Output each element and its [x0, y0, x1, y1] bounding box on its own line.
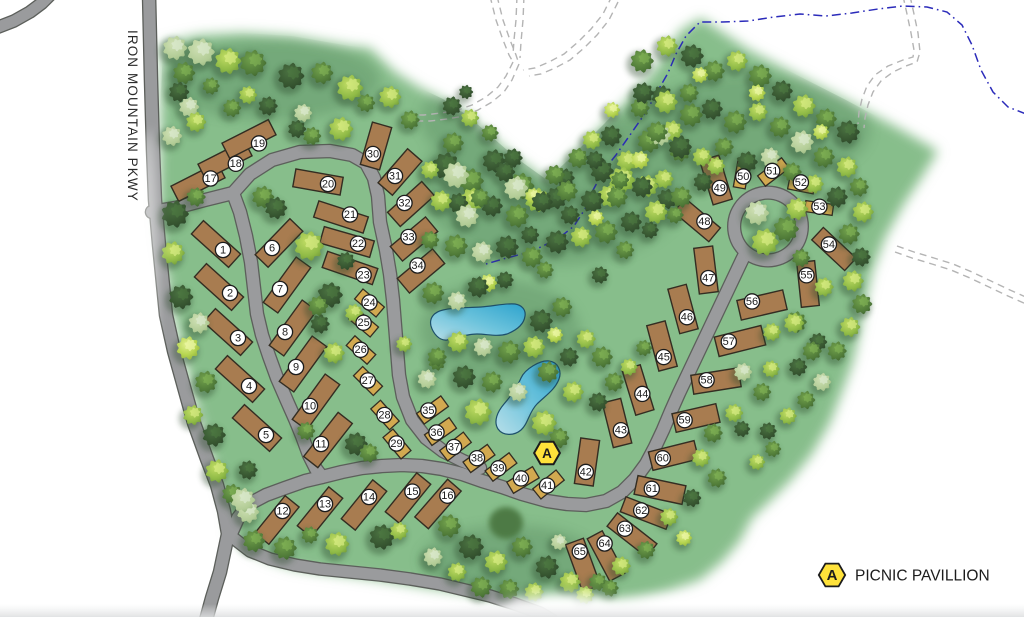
svg-text:1: 1: [220, 244, 226, 256]
svg-text:53: 53: [813, 201, 825, 213]
svg-text:36: 36: [430, 427, 442, 439]
svg-text:47: 47: [702, 273, 714, 285]
svg-text:15: 15: [406, 486, 418, 498]
svg-text:61: 61: [646, 483, 658, 495]
svg-text:A: A: [542, 446, 552, 461]
svg-text:57: 57: [723, 336, 735, 348]
svg-text:19: 19: [253, 138, 265, 150]
svg-text:8: 8: [282, 326, 288, 338]
svg-text:37: 37: [448, 441, 460, 453]
svg-text:50: 50: [737, 171, 749, 183]
svg-text:12: 12: [276, 505, 288, 517]
svg-text:64: 64: [598, 538, 610, 550]
svg-text:6: 6: [269, 242, 275, 254]
svg-text:14: 14: [363, 491, 375, 503]
svg-text:43: 43: [615, 425, 627, 437]
svg-text:34: 34: [411, 260, 423, 272]
svg-text:44: 44: [636, 388, 648, 400]
svg-text:62: 62: [635, 505, 647, 517]
svg-text:IRON MOUNTAIN PKWY: IRON MOUNTAIN PKWY: [125, 30, 140, 202]
svg-text:13: 13: [319, 498, 331, 510]
svg-text:24: 24: [363, 297, 375, 309]
svg-text:38: 38: [471, 453, 483, 465]
svg-text:51: 51: [766, 165, 778, 177]
svg-text:A: A: [827, 567, 838, 584]
svg-text:18: 18: [230, 158, 242, 170]
svg-text:20: 20: [322, 178, 334, 190]
svg-text:41: 41: [541, 480, 553, 492]
svg-text:26: 26: [354, 344, 366, 356]
svg-text:35: 35: [422, 405, 434, 417]
svg-text:46: 46: [681, 312, 693, 324]
svg-text:2: 2: [227, 287, 233, 299]
svg-text:58: 58: [700, 375, 712, 387]
svg-text:65: 65: [574, 546, 586, 558]
svg-text:48: 48: [698, 216, 710, 228]
svg-text:PICNIC PAVILLION: PICNIC PAVILLION: [855, 568, 990, 585]
svg-text:11: 11: [315, 438, 326, 450]
svg-text:55: 55: [800, 270, 812, 282]
svg-text:59: 59: [678, 415, 690, 427]
svg-text:32: 32: [398, 197, 410, 209]
svg-text:29: 29: [390, 438, 402, 450]
svg-text:60: 60: [657, 453, 669, 465]
svg-text:31: 31: [389, 170, 401, 182]
svg-text:42: 42: [580, 466, 592, 478]
svg-text:23: 23: [357, 269, 369, 281]
svg-text:9: 9: [293, 361, 299, 373]
svg-text:63: 63: [619, 523, 631, 535]
svg-text:30: 30: [367, 148, 379, 160]
svg-text:22: 22: [352, 238, 364, 250]
svg-text:33: 33: [402, 231, 414, 243]
svg-text:7: 7: [277, 283, 283, 295]
svg-text:52: 52: [795, 177, 807, 189]
svg-text:39: 39: [492, 463, 504, 475]
svg-text:45: 45: [658, 352, 670, 364]
svg-text:4: 4: [246, 380, 252, 392]
svg-text:25: 25: [357, 317, 369, 329]
svg-text:27: 27: [362, 375, 374, 387]
svg-text:28: 28: [378, 409, 390, 421]
svg-text:54: 54: [823, 239, 835, 251]
svg-text:17: 17: [204, 173, 216, 185]
svg-text:49: 49: [714, 182, 726, 194]
svg-text:5: 5: [263, 429, 269, 441]
svg-text:21: 21: [344, 209, 356, 221]
svg-text:3: 3: [235, 332, 241, 344]
svg-text:10: 10: [304, 400, 316, 412]
svg-text:16: 16: [441, 490, 453, 502]
svg-text:40: 40: [515, 473, 527, 485]
svg-text:56: 56: [746, 296, 758, 308]
